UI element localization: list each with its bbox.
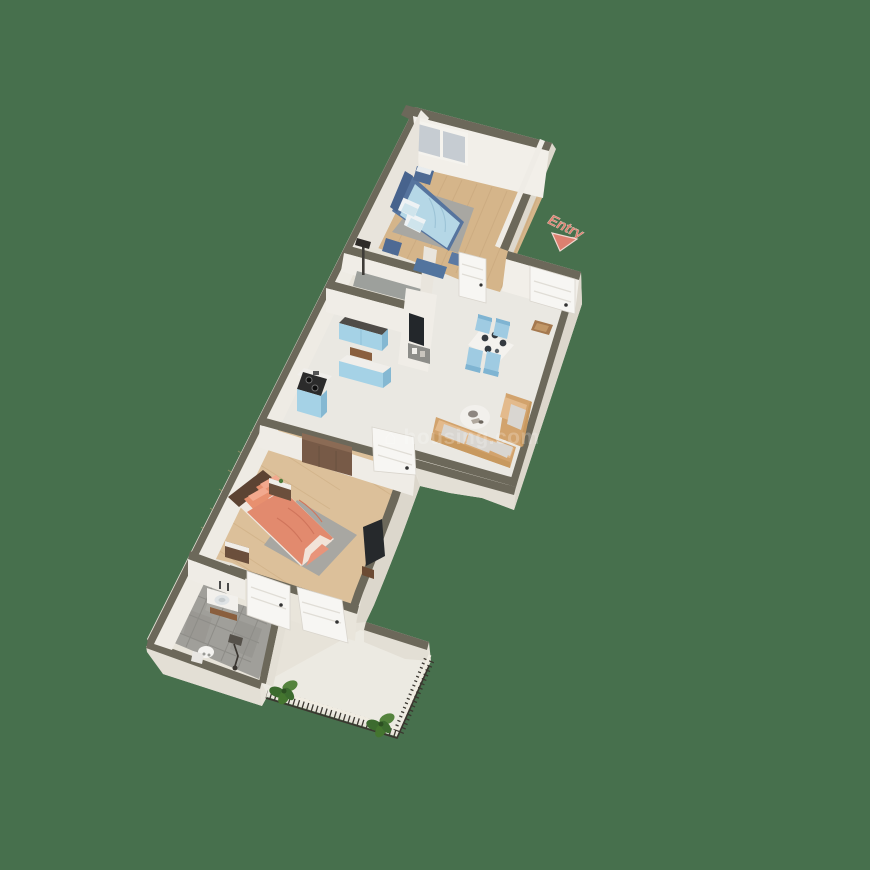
svg-text:⌂ housing.com: ⌂ housing.com	[384, 426, 540, 449]
